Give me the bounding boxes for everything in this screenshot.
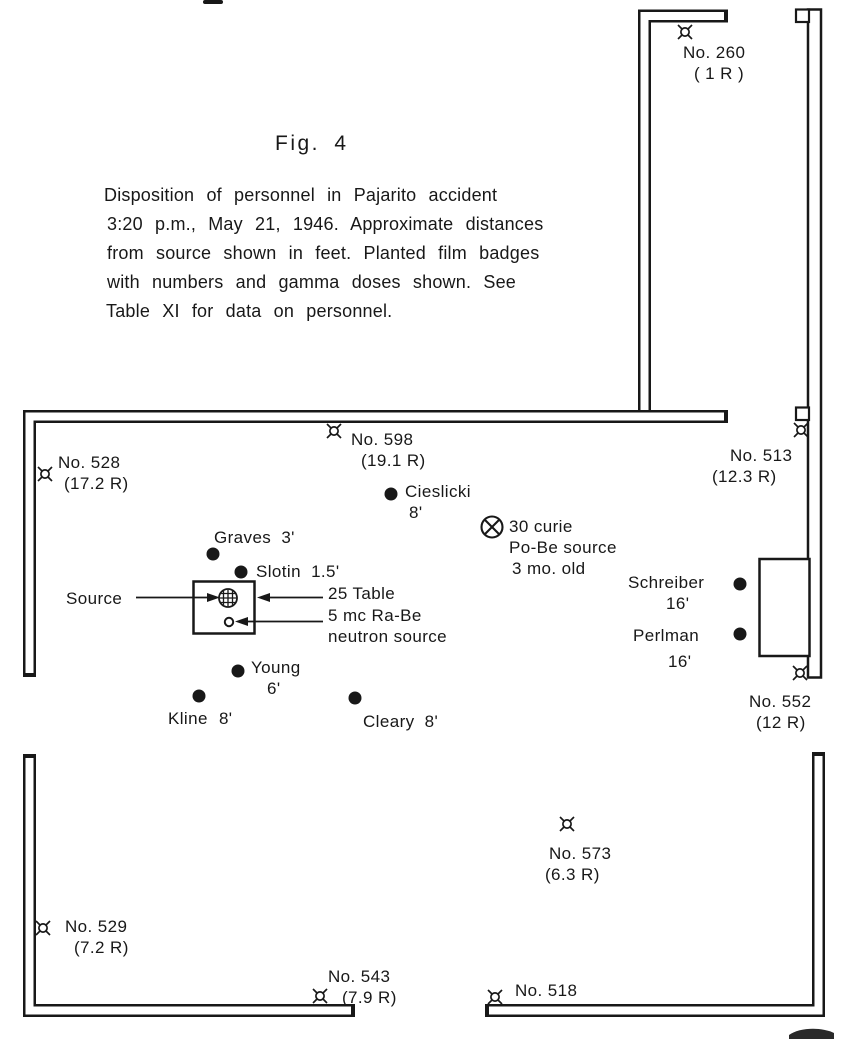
person-name-cieslicki: Cieslicki — [405, 481, 471, 502]
caption-line-3: from source shown in feet. Planted film … — [107, 243, 539, 264]
film-badge-icon-573 — [560, 817, 574, 831]
person-name-cleary: Cleary — [363, 712, 415, 731]
neutron-source-label-line1: 5 mc Ra-Be — [328, 605, 422, 626]
person-dot-young — [232, 665, 245, 678]
person-label-cieslicki: Cieslicki 8' — [405, 481, 471, 523]
person-label-graves: Graves 3' — [214, 527, 295, 548]
badge-513-number: No. 513 — [730, 445, 792, 466]
person-label-kline: Kline 8' — [168, 708, 232, 729]
person-name-graves: Graves — [214, 528, 271, 547]
door-jamb-top — [796, 10, 809, 23]
person-distance-perlman: 16' — [668, 649, 699, 675]
person-name-slotin: Slotin — [256, 562, 301, 581]
badge-598-label: No. 598 (19.1 R) — [351, 429, 426, 471]
neutron-source-label-line2: neutron source — [328, 626, 447, 647]
person-distance-graves: 3' — [281, 528, 295, 547]
film-badge-icon-598 — [327, 424, 341, 438]
person-label-slotin: Slotin 1.5' — [256, 561, 340, 582]
film-badge-icon-528 — [38, 467, 52, 481]
person-distance-schreiber: 16' — [666, 593, 704, 614]
person-distance-cleary: 8' — [425, 712, 439, 731]
person-dot-graves — [207, 548, 220, 561]
badge-552-label: No. 552 (12 R) — [749, 691, 811, 733]
caption-line-5: Table XI for data on personnel. — [106, 301, 392, 322]
person-distance-kline: 8' — [219, 709, 233, 728]
badge-518-label: No. 518 — [515, 980, 577, 1001]
badge-513-dose: (12.3 R) — [712, 466, 792, 487]
badge-528-dose: (17.2 R) — [64, 473, 129, 494]
person-dot-cleary — [349, 692, 362, 705]
badge-573-dose: (6.3 R) — [545, 864, 611, 885]
badge-529-dose: (7.2 R) — [74, 937, 129, 958]
person-name-schreiber: Schreiber — [628, 572, 704, 593]
film-badge-icon-552 — [793, 666, 807, 680]
badge-552-number: No. 552 — [749, 691, 811, 712]
person-dot-cieslicki — [385, 488, 398, 501]
person-label-perlman: Perlman 16' — [633, 623, 699, 675]
person-label-young: Young 6' — [251, 657, 301, 699]
badge-552-dose: (12 R) — [756, 712, 811, 733]
source-label: Source — [66, 588, 122, 609]
badge-529-number: No. 529 — [65, 916, 129, 937]
person-name-kline: Kline — [168, 709, 208, 728]
film-badge-icon-529 — [36, 921, 50, 935]
figure-title: Fig. 4 — [275, 133, 349, 154]
person-name-young: Young — [251, 657, 301, 678]
pobe-source-icon — [482, 517, 503, 538]
badge-528-label: No. 528 (17.2 R) — [58, 452, 129, 494]
scan-artifact-bottom — [789, 1029, 834, 1039]
badge-598-number: No. 598 — [351, 429, 426, 450]
person-dot-kline — [193, 690, 206, 703]
film-badge-icon-518 — [488, 990, 502, 1004]
caption-line-2: 3:20 p.m., May 21, 1946. Approximate dis… — [107, 214, 543, 235]
table-label: 25 Table — [328, 583, 395, 604]
person-dot-slotin — [235, 566, 248, 579]
badge-573-label: No. 573 (6.3 R) — [549, 843, 611, 885]
badge-260-dose: ( 1 R ) — [694, 63, 745, 84]
source-icon — [218, 588, 238, 608]
film-badge-icon-260 — [678, 25, 692, 39]
badge-543-dose: (7.9 R) — [342, 987, 397, 1008]
bench-rect — [760, 559, 810, 656]
badge-573-number: No. 573 — [549, 843, 611, 864]
person-name-perlman: Perlman — [633, 623, 699, 649]
badge-598-dose: (19.1 R) — [361, 450, 426, 471]
scan-artifact-top — [203, 0, 223, 4]
pobe-label-line2: Po-Be source — [509, 537, 617, 558]
caption-line-1: Disposition of personnel in Pajarito acc… — [104, 185, 497, 206]
film-badge-icon-513 — [794, 423, 808, 437]
badge-260-number: No. 260 — [683, 42, 745, 63]
pobe-label-line3: 3 mo. old — [512, 558, 586, 579]
figure-page: Fig. 4 Disposition of personnel in Pajar… — [0, 0, 850, 1039]
badge-513-label: No. 513 (12.3 R) — [730, 445, 792, 487]
pobe-label-line1: 30 curie — [509, 516, 573, 537]
film-badge-icon-543 — [313, 989, 327, 1003]
neutron-source-icon — [225, 618, 233, 626]
caption-line-4: with numbers and gamma doses shown. See — [107, 272, 516, 293]
person-label-cleary: Cleary 8' — [363, 711, 438, 732]
person-dot-perlman — [734, 628, 747, 641]
person-label-schreiber: Schreiber 16' — [628, 572, 704, 614]
badge-529-label: No. 529 (7.2 R) — [65, 916, 129, 958]
door-jamb-513 — [796, 408, 809, 421]
badge-543-number: No. 543 — [328, 966, 397, 987]
person-distance-cieslicki: 8' — [409, 502, 471, 523]
badge-528-number: No. 528 — [58, 452, 129, 473]
person-distance-young: 6' — [267, 678, 301, 699]
badge-543-label: No. 543 (7.9 R) — [328, 966, 397, 1008]
person-dot-schreiber — [734, 578, 747, 591]
badge-260-label: No. 260 ( 1 R ) — [683, 42, 745, 84]
person-distance-slotin: 1.5' — [311, 562, 339, 581]
